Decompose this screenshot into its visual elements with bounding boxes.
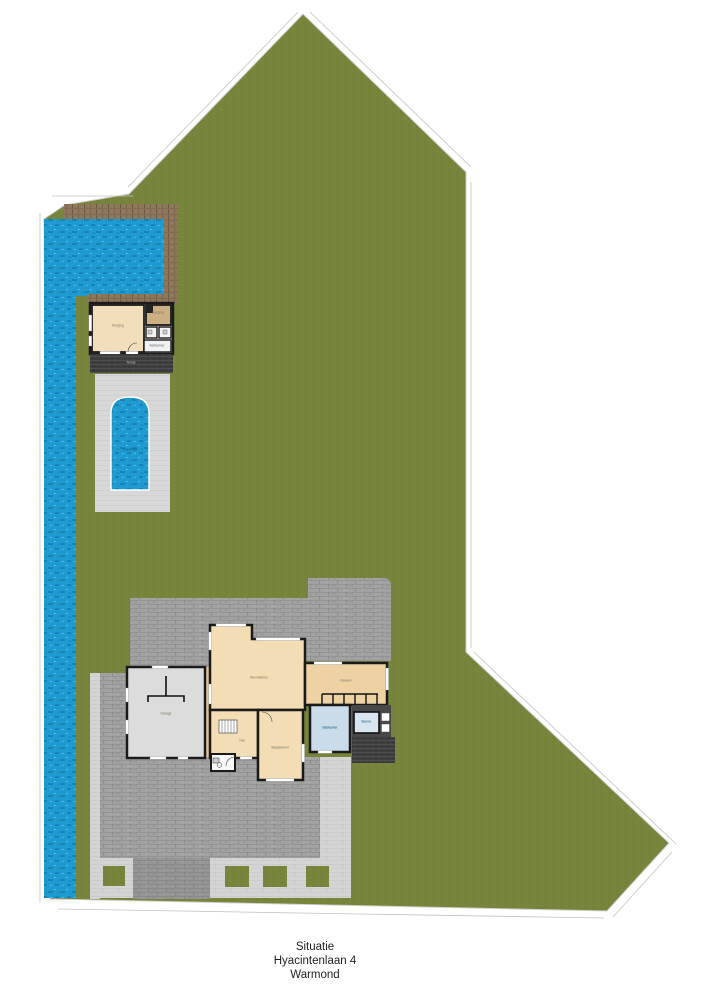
bathroom-label: Badkamer [322,726,337,730]
sauna-label: Sauna [361,720,371,724]
hall-label: Hal [240,739,245,743]
gh-fixture [148,330,152,334]
garden-house-main-label: Berging [112,324,123,328]
swimming-pool [111,397,149,490]
bedroom-label: Slaapkamer [271,746,289,750]
left-paving-strip [100,673,127,758]
plan-caption: Situatie Hyacintenlaan 4 Warmond [245,941,385,982]
terrace-label: Terras [126,361,135,365]
sauna-window-a [382,713,390,721]
caption-line-situatie: Situatie [245,941,385,955]
sauna-window-b [382,724,390,732]
living-room-label: Woonkamer [250,676,268,680]
garden-house-storage-label: Berging [152,311,163,315]
bedroom-room [258,710,303,780]
site-plan-page: Garage Woonkamer Keuken Badkamer Sauna H… [0,0,707,1000]
caption-line-address: Hyacintenlaan 4 [245,955,385,969]
staircase [219,720,237,733]
pool-label: Zwembad [123,448,137,452]
site-plan-drawing [0,0,707,1000]
kitchen-room [305,663,387,705]
driveway-ramp-shade [133,858,210,899]
house-terrace-deck [352,737,395,763]
gh-fixture2 [163,330,167,334]
left-path-light [90,673,100,899]
caption-line-city: Warmond [245,969,385,983]
hall-room [210,710,258,758]
garage-label: Garage [160,712,171,716]
kitchen-label: Keuken [340,679,351,683]
garden-house-main-room [92,305,144,352]
garden-house-bath-label: Badkamer [149,344,164,348]
